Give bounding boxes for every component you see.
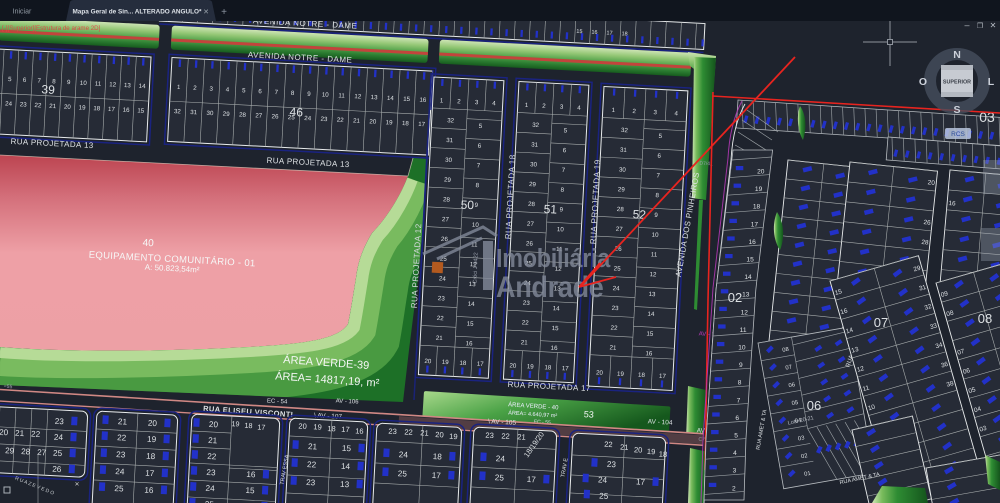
- svg-text:21: 21: [353, 118, 361, 125]
- svg-text:14: 14: [341, 462, 351, 471]
- svg-text:07: 07: [874, 315, 888, 330]
- svg-text:18: 18: [433, 452, 443, 461]
- svg-text:24: 24: [5, 101, 13, 108]
- svg-text:26: 26: [923, 219, 931, 227]
- svg-text:11: 11: [740, 327, 747, 334]
- svg-text:16: 16: [144, 486, 154, 495]
- svg-text:25: 25: [614, 265, 622, 272]
- svg-text:28: 28: [921, 239, 929, 247]
- svg-text:32: 32: [447, 117, 455, 124]
- svg-text:22: 22: [207, 452, 217, 461]
- svg-text:20: 20: [435, 430, 444, 439]
- svg-text:6: 6: [735, 415, 739, 422]
- svg-text:9: 9: [739, 362, 743, 369]
- svg-text:–: –: [964, 20, 969, 30]
- svg-text:40: 40: [142, 238, 154, 250]
- svg-text:28: 28: [239, 112, 247, 119]
- svg-text:23: 23: [320, 116, 328, 123]
- svg-text:19: 19: [313, 422, 322, 431]
- svg-text:14: 14: [468, 301, 476, 308]
- svg-text:18: 18: [402, 120, 410, 127]
- svg-text:46: 46: [289, 105, 303, 120]
- svg-text:18: 18: [146, 452, 156, 461]
- svg-text:19: 19: [78, 104, 86, 111]
- svg-text:10: 10: [80, 80, 88, 87]
- svg-text:25: 25: [599, 491, 609, 500]
- svg-text:31: 31: [531, 141, 539, 148]
- svg-text:23: 23: [607, 460, 617, 469]
- svg-text:21: 21: [521, 339, 529, 346]
- svg-text:22: 22: [522, 319, 530, 326]
- svg-text:11: 11: [95, 81, 102, 88]
- svg-text:16: 16: [749, 239, 757, 246]
- svg-text:22: 22: [307, 460, 317, 469]
- svg-text:23: 23: [20, 101, 28, 108]
- svg-text:28: 28: [528, 201, 536, 208]
- svg-text:[-][Superior][Estrutura de ara: [-][Superior][Estrutura de arame 2D]: [2, 25, 101, 32]
- svg-text:21: 21: [49, 103, 57, 110]
- svg-text:17: 17: [108, 106, 116, 113]
- svg-text:22: 22: [31, 430, 41, 439]
- svg-text:17: 17: [341, 425, 350, 434]
- svg-text:28: 28: [443, 196, 451, 203]
- svg-text:Andrade: Andrade: [496, 271, 604, 305]
- svg-text:08: 08: [978, 311, 992, 326]
- svg-text:20: 20: [0, 428, 9, 437]
- svg-text:21: 21: [308, 442, 318, 451]
- svg-text:20: 20: [298, 421, 307, 430]
- svg-text:5: 5: [734, 433, 738, 440]
- svg-text:24: 24: [54, 433, 64, 442]
- svg-text:24: 24: [598, 475, 608, 484]
- svg-text:29: 29: [529, 181, 537, 188]
- svg-text:19: 19: [647, 447, 656, 456]
- svg-text:02: 02: [728, 290, 742, 305]
- svg-text:13: 13: [340, 480, 350, 489]
- svg-text:20: 20: [509, 362, 517, 369]
- svg-text:17: 17: [257, 422, 265, 431]
- svg-text:53: 53: [584, 409, 595, 420]
- svg-text:21: 21: [620, 442, 629, 451]
- svg-text:28: 28: [21, 447, 31, 456]
- svg-text:52: 52: [632, 207, 646, 222]
- svg-text:29: 29: [618, 186, 626, 193]
- svg-text:30: 30: [206, 110, 214, 117]
- svg-text:26: 26: [52, 465, 62, 474]
- svg-text:17: 17: [145, 469, 155, 478]
- svg-text:23: 23: [306, 478, 316, 487]
- svg-text:17: 17: [659, 373, 667, 380]
- svg-text:02: 02: [801, 453, 808, 460]
- svg-text:28: 28: [617, 206, 625, 213]
- svg-text:✕: ✕: [74, 482, 79, 488]
- svg-text:❐: ❐: [977, 22, 983, 30]
- svg-text:21: 21: [517, 432, 526, 441]
- svg-text:10: 10: [738, 345, 746, 352]
- svg-text:24: 24: [613, 285, 621, 292]
- svg-text:32: 32: [621, 127, 629, 134]
- svg-text:18: 18: [244, 421, 252, 430]
- svg-text:O: O: [919, 76, 927, 88]
- svg-text:15: 15: [403, 96, 411, 103]
- svg-text:23: 23: [55, 417, 65, 426]
- svg-text:14: 14: [138, 83, 146, 90]
- svg-text:15: 15: [342, 444, 352, 453]
- svg-text:Imobiliária: Imobiliária: [496, 245, 611, 273]
- svg-text:20: 20: [424, 358, 432, 365]
- svg-text:AV - 104: AV - 104: [648, 418, 674, 426]
- svg-text:18: 18: [621, 31, 627, 37]
- svg-text:23: 23: [438, 295, 446, 302]
- svg-text:15: 15: [646, 330, 654, 337]
- svg-text:11: 11: [338, 92, 345, 99]
- svg-text:14: 14: [647, 311, 655, 318]
- svg-text:20: 20: [148, 419, 158, 428]
- svg-text:06: 06: [807, 398, 821, 413]
- svg-text:16: 16: [645, 350, 653, 357]
- svg-text:03: 03: [798, 435, 805, 442]
- svg-text:23: 23: [388, 427, 397, 436]
- svg-text:12: 12: [741, 309, 749, 316]
- svg-text:19: 19: [442, 359, 450, 366]
- svg-text:19: 19: [755, 186, 763, 193]
- svg-text:23: 23: [116, 450, 126, 459]
- svg-text:39: 39: [41, 82, 55, 97]
- svg-text:12: 12: [649, 271, 657, 278]
- svg-text:27: 27: [442, 216, 450, 223]
- svg-text:27: 27: [255, 112, 263, 119]
- svg-text:22: 22: [501, 431, 510, 440]
- svg-text:21: 21: [15, 429, 25, 438]
- svg-text:16: 16: [591, 30, 597, 36]
- svg-text:18: 18: [659, 450, 668, 459]
- svg-text:10: 10: [651, 232, 659, 239]
- svg-text:S: S: [953, 104, 960, 116]
- svg-text:16: 16: [465, 340, 473, 347]
- svg-text:EC - 54: EC - 54: [267, 398, 288, 405]
- svg-text:18: 18: [93, 105, 101, 112]
- svg-text:27: 27: [37, 448, 47, 457]
- svg-text:Mapa Geral de Sin... ALTERADO: Mapa Geral de Sin... ALTERADO ANGULO*: [72, 9, 202, 16]
- svg-text:17: 17: [418, 121, 426, 128]
- svg-text:17: 17: [527, 475, 537, 484]
- svg-text:20: 20: [369, 118, 377, 125]
- svg-text:20: 20: [64, 104, 72, 111]
- svg-text:8: 8: [738, 380, 742, 387]
- svg-text:20: 20: [927, 179, 935, 187]
- svg-text:22: 22: [604, 440, 613, 449]
- svg-text:15: 15: [576, 29, 582, 35]
- svg-text:31: 31: [446, 137, 454, 144]
- svg-text:16: 16: [355, 426, 364, 435]
- svg-text:25: 25: [398, 469, 408, 478]
- svg-text:32: 32: [174, 108, 182, 115]
- svg-text:14: 14: [387, 95, 395, 102]
- svg-text:20: 20: [757, 169, 765, 176]
- svg-text:30: 30: [530, 161, 538, 168]
- svg-text:22: 22: [337, 117, 345, 124]
- svg-text:17: 17: [562, 365, 570, 372]
- svg-text:23: 23: [206, 468, 216, 477]
- svg-text:12: 12: [109, 81, 117, 88]
- svg-text:✕: ✕: [990, 21, 997, 30]
- svg-text:18: 18: [753, 204, 761, 211]
- svg-text:07: 07: [785, 365, 792, 372]
- svg-text:32: 32: [532, 122, 540, 129]
- svg-text:20: 20: [634, 445, 643, 454]
- svg-text:15: 15: [466, 320, 474, 327]
- svg-text:16: 16: [948, 200, 956, 208]
- svg-text:23: 23: [485, 431, 494, 440]
- svg-text:SUPERIOR: SUPERIOR: [943, 80, 971, 86]
- svg-text:17: 17: [751, 221, 759, 228]
- svg-text:21: 21: [609, 344, 617, 351]
- svg-text:29: 29: [444, 177, 452, 184]
- svg-text:11: 11: [651, 251, 658, 258]
- svg-text:27: 27: [527, 221, 535, 228]
- svg-text:50: 50: [460, 198, 474, 213]
- svg-text:+: +: [221, 7, 227, 18]
- svg-text:15: 15: [551, 325, 559, 332]
- svg-text:10: 10: [322, 91, 330, 98]
- svg-text:14: 14: [553, 305, 561, 312]
- svg-text:L: L: [988, 76, 995, 88]
- svg-text:13: 13: [742, 292, 750, 299]
- svg-text:29: 29: [223, 111, 231, 118]
- svg-text:29: 29: [5, 446, 15, 455]
- svg-text:08: 08: [782, 347, 789, 354]
- svg-text:12: 12: [354, 93, 362, 100]
- svg-text:21: 21: [118, 417, 128, 426]
- svg-text:24: 24: [115, 467, 125, 476]
- svg-text:19: 19: [231, 419, 239, 428]
- svg-text:25: 25: [114, 484, 124, 493]
- svg-text:15: 15: [137, 107, 145, 114]
- svg-text:7: 7: [737, 397, 741, 404]
- svg-text:30: 30: [445, 157, 453, 164]
- svg-text:24: 24: [205, 484, 215, 493]
- svg-text:20: 20: [596, 369, 604, 376]
- svg-text:RCS: RCS: [951, 131, 965, 138]
- svg-text:24: 24: [304, 115, 312, 122]
- svg-text:18: 18: [459, 360, 467, 367]
- svg-text:06: 06: [788, 382, 795, 389]
- svg-text:51: 51: [543, 202, 557, 217]
- svg-text:18: 18: [544, 364, 552, 371]
- svg-text:AV - 106: AV - 106: [335, 398, 359, 405]
- svg-text:26: 26: [271, 113, 279, 120]
- svg-text:13: 13: [648, 291, 656, 298]
- svg-text:17: 17: [477, 361, 485, 368]
- svg-text:21: 21: [436, 335, 444, 342]
- svg-text:15: 15: [746, 257, 754, 264]
- svg-text:22: 22: [34, 102, 42, 109]
- svg-text:19: 19: [385, 119, 393, 126]
- svg-text:24: 24: [399, 450, 409, 459]
- svg-text:24: 24: [496, 454, 506, 463]
- svg-text:19: 19: [527, 363, 535, 370]
- svg-text:22: 22: [117, 433, 127, 442]
- svg-text:2: 2: [732, 485, 736, 492]
- svg-text:14: 14: [744, 274, 752, 281]
- svg-text:23: 23: [611, 305, 619, 312]
- svg-text:19: 19: [449, 432, 458, 441]
- svg-text:25: 25: [495, 473, 505, 482]
- svg-text:20: 20: [209, 420, 219, 429]
- svg-text:16: 16: [246, 470, 256, 479]
- svg-text:17: 17: [606, 30, 612, 36]
- svg-text:31: 31: [620, 147, 628, 154]
- svg-text:21: 21: [420, 428, 429, 437]
- svg-text:19: 19: [617, 371, 625, 378]
- svg-text:22: 22: [404, 427, 413, 436]
- svg-text:✕: ✕: [203, 9, 209, 16]
- svg-text:22: 22: [437, 315, 445, 322]
- svg-text:3: 3: [733, 468, 737, 475]
- svg-text:27: 27: [616, 226, 624, 233]
- svg-text:N: N: [953, 49, 961, 61]
- svg-text:30: 30: [619, 166, 627, 173]
- svg-text:17: 17: [432, 471, 442, 480]
- svg-text:25: 25: [53, 449, 63, 458]
- svg-text:22: 22: [610, 325, 618, 332]
- svg-text:01: 01: [804, 471, 811, 478]
- svg-text:16: 16: [550, 345, 558, 352]
- svg-text:15: 15: [245, 486, 255, 495]
- svg-text:05: 05: [791, 400, 798, 407]
- svg-text:24: 24: [439, 275, 447, 282]
- svg-text:19: 19: [147, 435, 157, 444]
- svg-text:18: 18: [638, 372, 646, 379]
- svg-text:17: 17: [636, 477, 646, 486]
- svg-text:16: 16: [419, 97, 427, 104]
- svg-text:21: 21: [208, 436, 218, 445]
- svg-text:16: 16: [122, 107, 130, 114]
- svg-text:18: 18: [327, 424, 336, 433]
- svg-text:31: 31: [190, 109, 198, 116]
- svg-text:13: 13: [124, 82, 132, 89]
- svg-text:10: 10: [557, 226, 565, 233]
- svg-text:Iniciar: Iniciar: [13, 9, 32, 16]
- svg-text:Cróci J-0422: Cróci J-0422: [472, 252, 479, 283]
- svg-text:4: 4: [733, 450, 737, 457]
- svg-text:13: 13: [370, 94, 378, 101]
